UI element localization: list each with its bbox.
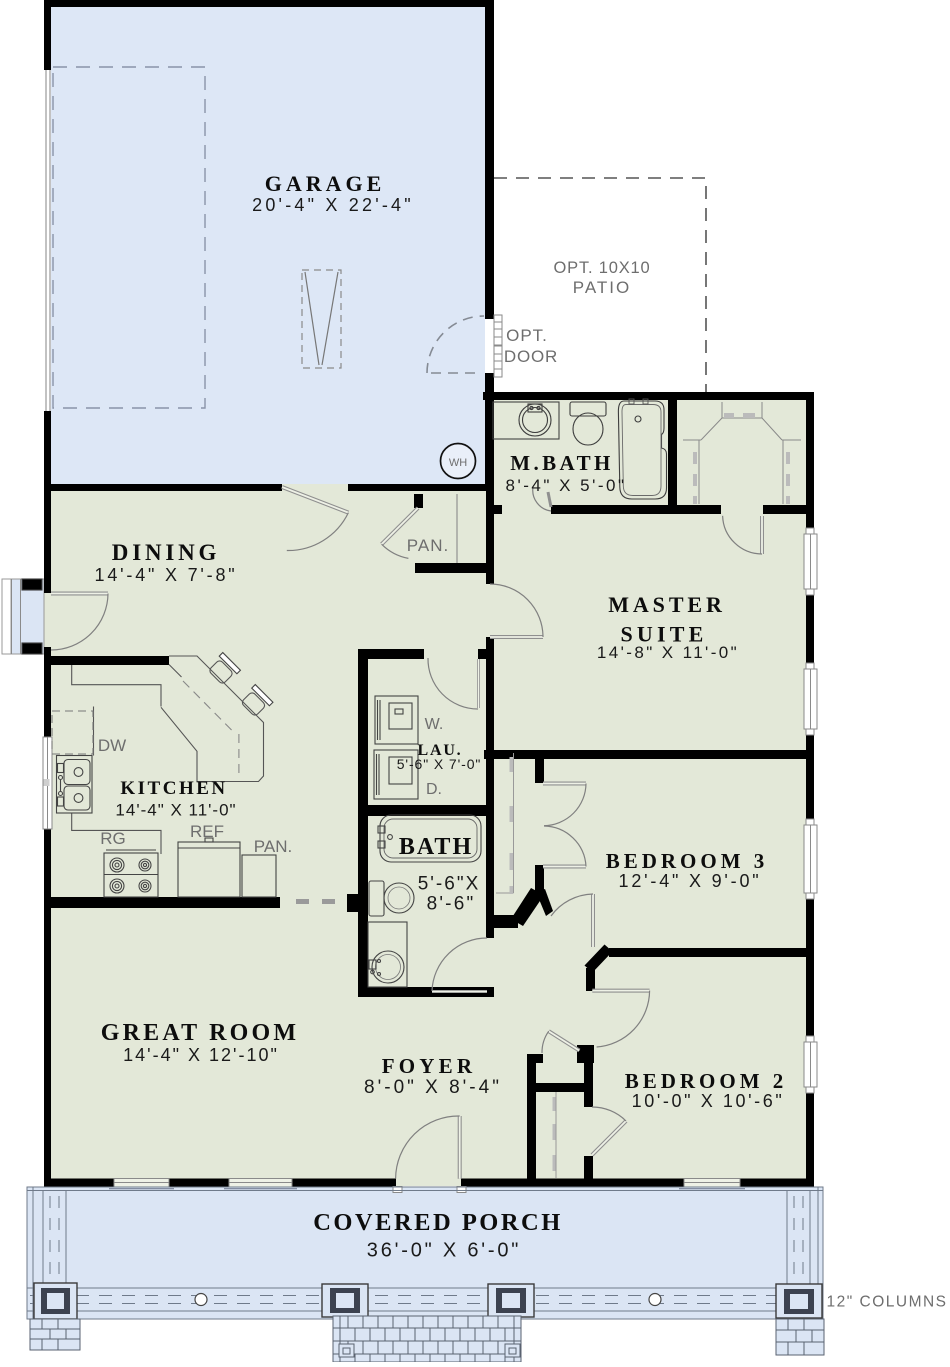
svg-text:36'-0" X 6'-0": 36'-0" X 6'-0" [367,1240,521,1262]
svg-text:8'-0" X 8'-4": 8'-0" X 8'-4" [364,1077,502,1098]
svg-text:BEDROOM 2: BEDROOM 2 [625,1069,788,1093]
svg-text:W.: W. [425,716,444,733]
svg-text:14'-4" X 12'-10": 14'-4" X 12'-10" [123,1045,279,1065]
svg-text:12" COLUMNS: 12" COLUMNS [826,1294,947,1311]
svg-text:DOOR: DOOR [504,347,558,366]
svg-text:8'-4" X 5'-0": 8'-4" X 5'-0" [506,476,627,495]
svg-text:FOYER: FOYER [382,1054,477,1078]
svg-text:12'-4" X 9'-0": 12'-4" X 9'-0" [619,871,762,891]
svg-text:PATIO: PATIO [573,278,632,297]
svg-text:PAN.: PAN. [254,837,292,856]
svg-text:WH: WH [449,457,467,469]
svg-text:RG: RG [100,829,126,848]
svg-text:20'-4" X 22'-4": 20'-4" X 22'-4" [252,195,414,215]
svg-text:OPT.: OPT. [506,326,548,345]
svg-text:COVERED PORCH: COVERED PORCH [313,1209,563,1236]
svg-text:D.: D. [426,781,442,798]
svg-text:KITCHEN: KITCHEN [120,778,227,799]
svg-text:BEDROOM 3: BEDROOM 3 [606,849,769,873]
svg-text:14'-8" X 11'-0": 14'-8" X 11'-0" [597,643,739,662]
svg-text:GREAT ROOM: GREAT ROOM [101,1020,299,1046]
svg-text:5'-6"X: 5'-6"X [418,874,481,895]
svg-text:10'-0" X 10'-6": 10'-0" X 10'-6" [632,1091,785,1111]
svg-text:8'-6": 8'-6" [427,894,476,915]
svg-text:BATH: BATH [399,834,473,860]
svg-text:OPT. 10X10: OPT. 10X10 [554,259,651,277]
svg-text:M.BATH: M.BATH [510,451,613,475]
svg-text:PAN.: PAN. [407,536,449,555]
svg-text:14'-4" X 7'-8": 14'-4" X 7'-8" [95,565,238,585]
svg-text:MASTER: MASTER [608,592,726,617]
svg-text:5'-6" X 7'-0": 5'-6" X 7'-0" [397,756,482,772]
svg-text:REF: REF [190,822,224,841]
svg-text:GARAGE: GARAGE [265,171,386,196]
svg-text:DW: DW [98,736,126,755]
svg-text:DINING: DINING [112,540,220,565]
svg-text:14'-4" X 11'-0": 14'-4" X 11'-0" [115,801,236,820]
